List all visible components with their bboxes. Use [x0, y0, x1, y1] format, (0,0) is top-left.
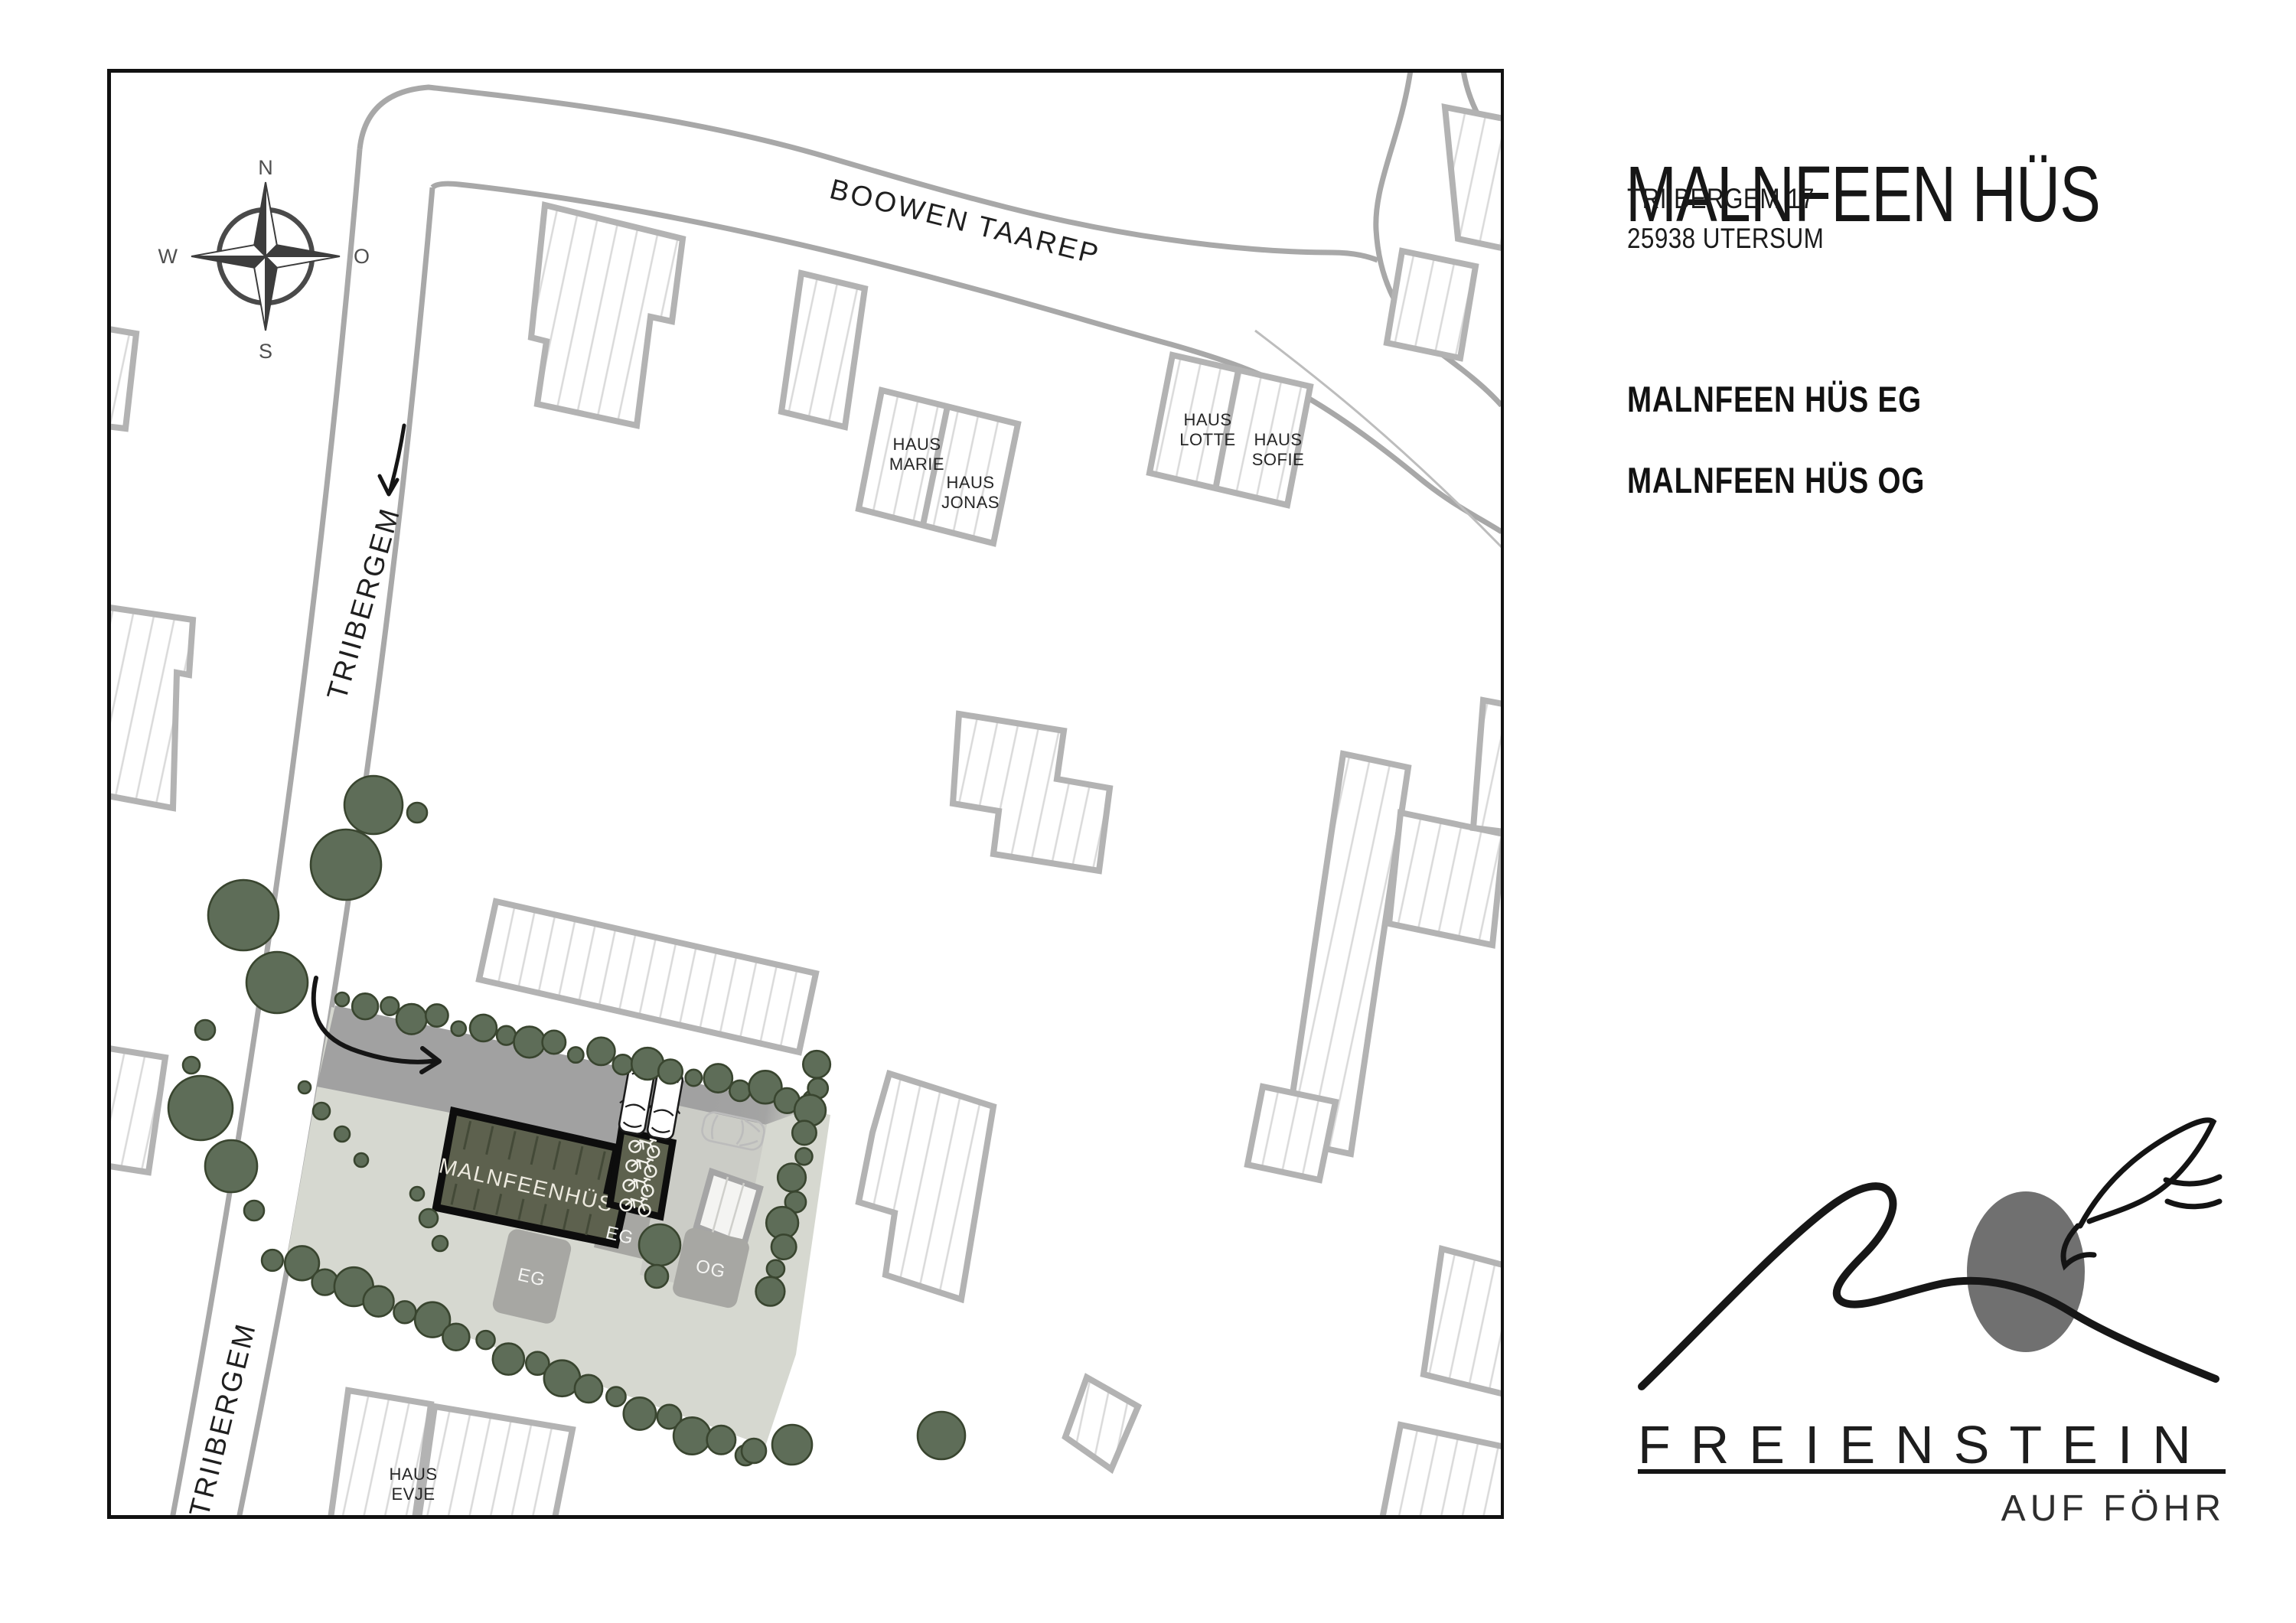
- tree-icon: [792, 1121, 816, 1145]
- tree-icon: [410, 1187, 424, 1201]
- label-haus-lotte: HAUS: [1183, 410, 1231, 429]
- tree-icon: [344, 776, 403, 834]
- compass-east-label: O: [354, 245, 370, 268]
- svg-text:EVJE: EVJE: [391, 1484, 435, 1504]
- tree-icon: [208, 880, 279, 950]
- logo-wave-squiggle-icon: [1642, 1186, 2216, 1387]
- tree-icon: [795, 1148, 812, 1165]
- label-haus-evje: HAUS: [389, 1465, 437, 1484]
- label-haus-sofie: HAUS: [1254, 430, 1302, 449]
- tree-icon: [432, 1236, 448, 1251]
- tree-icon: [587, 1038, 615, 1065]
- svg-text:SOFIE: SOFIE: [1252, 450, 1305, 469]
- building-east-low-small: [1247, 1087, 1336, 1180]
- tree-icon: [729, 1080, 750, 1101]
- tree-icon: [767, 1260, 784, 1278]
- tree-icon: [195, 1020, 215, 1040]
- site-plan-map: BOOWEN TAAREP TRIIBERGEM TRIIBERGEM: [107, 69, 1504, 1519]
- tree-icon: [493, 1344, 524, 1375]
- tree-icon: [335, 992, 349, 1006]
- tree-icon: [477, 1331, 495, 1349]
- tree-icon: [334, 1126, 350, 1142]
- tree-icon: [313, 1103, 330, 1119]
- address-city: 25938 UTERSUM: [1627, 219, 1824, 259]
- tree-icon: [354, 1153, 368, 1167]
- logo-brand-text: FREIENSTEIN: [1638, 1414, 2242, 1475]
- tree-icon: [419, 1209, 438, 1227]
- site-plan-page: BOOWEN TAAREP TRIIBERGEM TRIIBERGEM: [0, 0, 2296, 1623]
- compass-south-label: S: [259, 340, 272, 363]
- tree-icon: [246, 952, 308, 1013]
- logo-bird-icon: [2063, 1120, 2219, 1266]
- tree-icon: [568, 1047, 583, 1062]
- tree-icon: [442, 1324, 469, 1351]
- svg-text:JONAS: JONAS: [941, 493, 1000, 512]
- svg-text:MARIE: MARIE: [889, 455, 944, 474]
- tree-icon: [742, 1439, 766, 1463]
- tree-icon: [352, 993, 378, 1019]
- tree-icon: [543, 1031, 566, 1054]
- tree-icon: [244, 1201, 264, 1221]
- tree-icon: [426, 1004, 448, 1026]
- address-block: TRIIBERGEM 17 25938 UTERSUM: [1627, 179, 1824, 259]
- tree-icon: [452, 1022, 466, 1036]
- tree-icon: [756, 1277, 785, 1306]
- tree-icon: [396, 1004, 426, 1034]
- tree-icon: [262, 1250, 283, 1271]
- logo-stone-icon: [1967, 1191, 2085, 1352]
- label-haus-marie: HAUS: [892, 435, 941, 454]
- building-bottomright-upper: [1424, 1249, 1504, 1399]
- tree-icon: [205, 1140, 257, 1192]
- tree-icon: [311, 829, 381, 900]
- tree-icon: [918, 1412, 965, 1459]
- compass-west-label: W: [158, 245, 178, 268]
- tree-icon: [645, 1265, 668, 1288]
- tree-icon: [298, 1081, 311, 1093]
- building-right-upper: [1387, 251, 1476, 358]
- tree-icon: [393, 1301, 416, 1323]
- tree-icon: [407, 803, 427, 823]
- tree-icon: [704, 1064, 732, 1092]
- tree-icon: [606, 1387, 625, 1406]
- tree-icon: [380, 997, 399, 1015]
- tree-icon: [624, 1397, 656, 1429]
- tree-icon: [771, 1234, 796, 1259]
- tree-icon: [658, 1060, 683, 1084]
- tree-icon: [707, 1426, 735, 1454]
- compass-north-label: N: [258, 156, 273, 179]
- label-haus-jonas: HAUS: [946, 473, 994, 492]
- bike-shed: [610, 1130, 673, 1217]
- logo-tagline: AUF FÖHR: [1638, 1488, 2226, 1530]
- address-street: TRIIBERGEM 17: [1627, 179, 1824, 219]
- tree-icon: [639, 1224, 680, 1266]
- freienstein-logo-art: [1630, 1110, 2227, 1400]
- link-malnfeen-hues-eg[interactable]: MALNFEEN HÜS EG: [1627, 378, 1922, 420]
- tree-icon: [183, 1057, 200, 1074]
- tree-icon: [803, 1051, 830, 1078]
- tree-icon: [686, 1070, 702, 1086]
- tree-icon: [673, 1417, 710, 1454]
- tree-icon: [575, 1375, 602, 1403]
- tree-icon: [772, 1425, 812, 1465]
- link-malnfeen-hues-og[interactable]: MALNFEEN HÜS OG: [1627, 459, 1925, 501]
- building-haus-evje-east: [417, 1406, 572, 1519]
- tree-icon: [778, 1164, 806, 1192]
- tree-icon: [168, 1076, 233, 1140]
- svg-text:LOTTE: LOTTE: [1179, 430, 1235, 449]
- logo-divider: [1638, 1469, 2226, 1474]
- tree-icon: [514, 1027, 545, 1058]
- tree-icon: [613, 1054, 633, 1074]
- tree-icon: [364, 1286, 394, 1317]
- tree-icon: [470, 1015, 497, 1041]
